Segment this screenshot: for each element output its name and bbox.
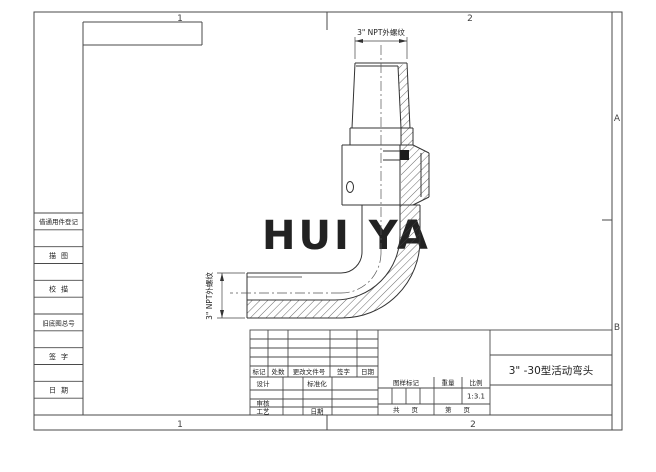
scale-label: 比例 [470,378,483,387]
left-register-strip [34,213,83,398]
dimension-arrows [220,39,407,318]
rev-header-date: 日期 [361,368,375,376]
dimension-lines [217,37,407,318]
zone-top-2: 2 [467,14,473,24]
design-label: 设计 [257,379,271,388]
zone-right-b: B [614,323,620,333]
strip-label-old-base-no: 旧底图总号 [42,319,75,328]
strip-label-date: 日期 [49,387,73,395]
process-label: 工艺 [257,408,271,416]
sheet-no-label: 第 页 [445,405,475,414]
scale-value: 1:3.1 [467,393,485,401]
zone-right-a: A [614,114,621,124]
weight-label: 重量 [442,379,456,387]
check-label: 审核 [257,399,271,408]
date-label: 日期 [311,408,325,416]
strip-label-tracing: 描图 [49,251,73,260]
cad-canvas: 1 2 1 2 A B 借通用件登记 描图 校描 旧底图总号 签字 日期 HUI… [0,0,656,472]
section-hatching [247,63,429,318]
zone-top-1: 1 [177,14,183,24]
strip-label-check-tracing: 校描 [49,285,73,294]
strip-label-signature: 签字 [49,352,73,361]
rev-header-signature: 签字 [337,367,351,376]
rev-header-mark: 标记 [253,367,267,376]
left-strip-labels: 借通用件登记 描图 校描 旧底图总号 签字 日期 [39,217,79,395]
rev-header-doc-no: 更改文件号 [293,367,326,376]
strip-label-register: 借通用件登记 [39,217,79,226]
total-sheets-label: 共 页 [393,405,423,414]
seal-section-mark [400,150,409,160]
drawing-sheet: 1 2 1 2 A B 借通用件登记 描图 校描 旧底图总号 签字 日期 HUI… [0,0,656,472]
side-thread-callout: 3" NPT外螺纹 [204,272,214,320]
rev-header-count: 处数 [272,367,286,376]
zone-bottom-2: 2 [470,420,476,430]
zone-bottom-1: 1 [177,420,183,430]
part-title: 3" -30型活动弯头 [509,364,594,377]
drawing-mark-label: 图样标记 [393,378,420,387]
top-thread-callout: 3" NPT外螺纹 [357,27,405,37]
weep-hole [347,182,354,193]
standardization-label: 标准化 [307,379,327,388]
